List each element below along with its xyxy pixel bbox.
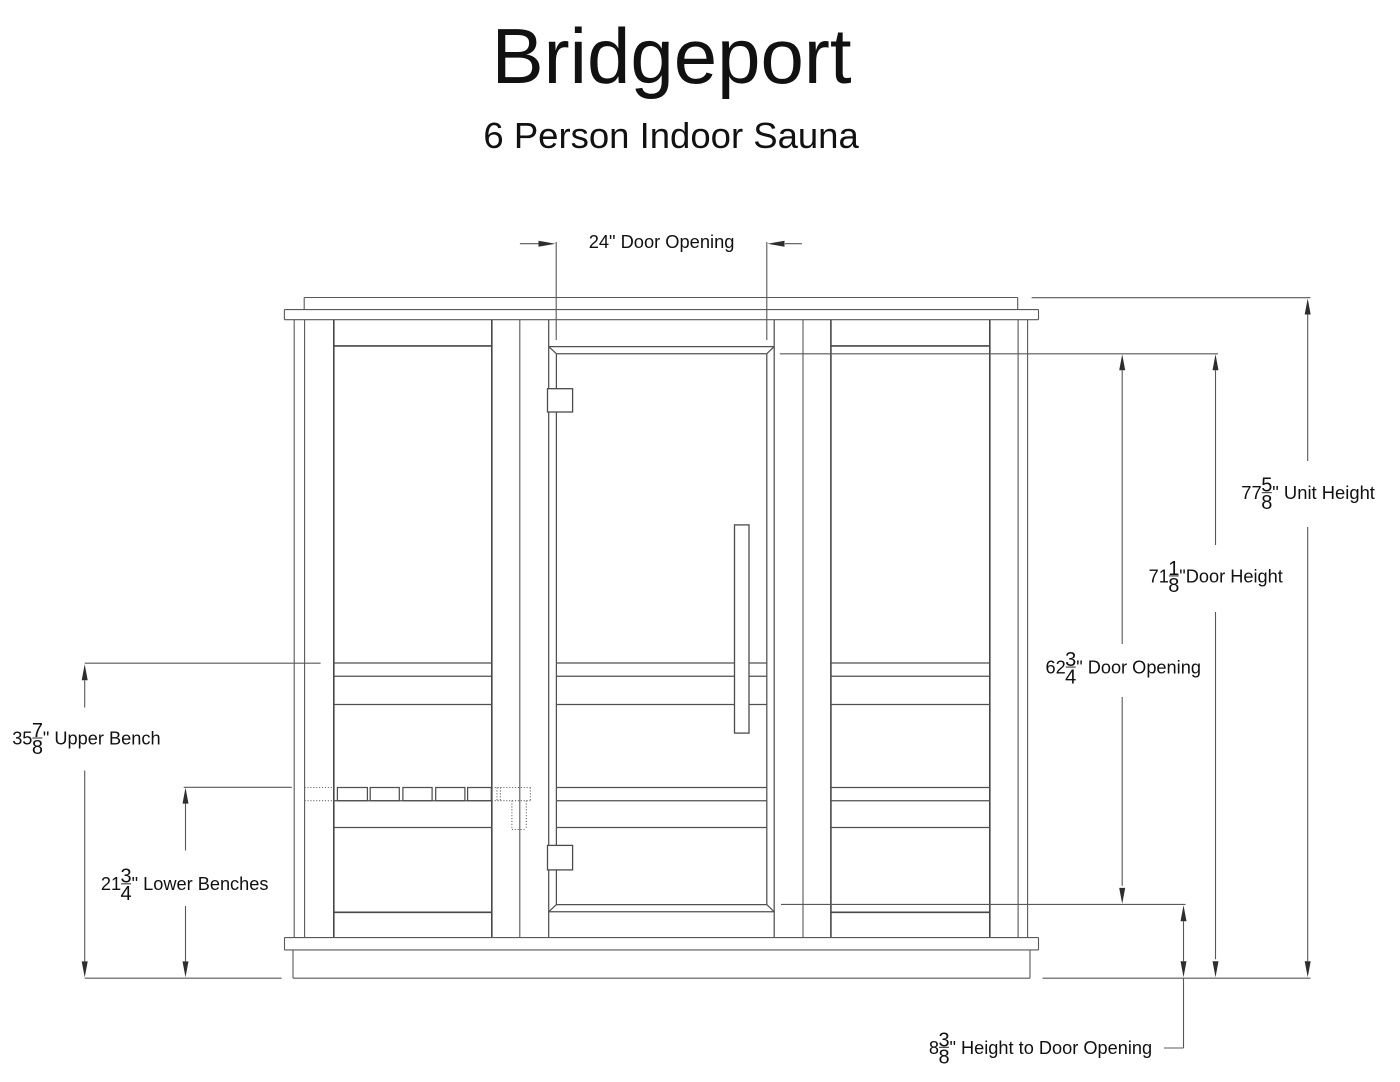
svg-text:" Unit Height: " Unit Height <box>1272 482 1375 503</box>
svg-text:21: 21 <box>101 874 121 894</box>
svg-text:8: 8 <box>1261 492 1272 514</box>
svg-text:24" Door Opening: 24" Door Opening <box>589 231 735 252</box>
svg-text:" Door Opening: " Door Opening <box>1076 658 1201 678</box>
svg-text:" Lower Benches: " Lower Benches <box>132 874 269 894</box>
svg-text:77: 77 <box>1241 482 1261 503</box>
svg-text:71: 71 <box>1149 566 1169 586</box>
svg-text:6 Person Indoor Sauna: 6 Person Indoor Sauna <box>483 115 859 156</box>
svg-text:4: 4 <box>121 883 132 905</box>
svg-text:4: 4 <box>1065 666 1076 688</box>
svg-text:" Height to Door Opening: " Height to Door Opening <box>950 1038 1153 1058</box>
svg-text:8: 8 <box>1168 575 1179 597</box>
svg-text:" Upper Bench: " Upper Bench <box>43 728 161 748</box>
svg-text:8: 8 <box>32 737 43 759</box>
svg-text:35: 35 <box>12 728 32 748</box>
svg-text:"Door Height: "Door Height <box>1179 566 1283 586</box>
svg-text:62: 62 <box>1046 658 1066 678</box>
svg-text:Bridgeport: Bridgeport <box>492 12 852 100</box>
svg-text:8: 8 <box>938 1047 949 1069</box>
